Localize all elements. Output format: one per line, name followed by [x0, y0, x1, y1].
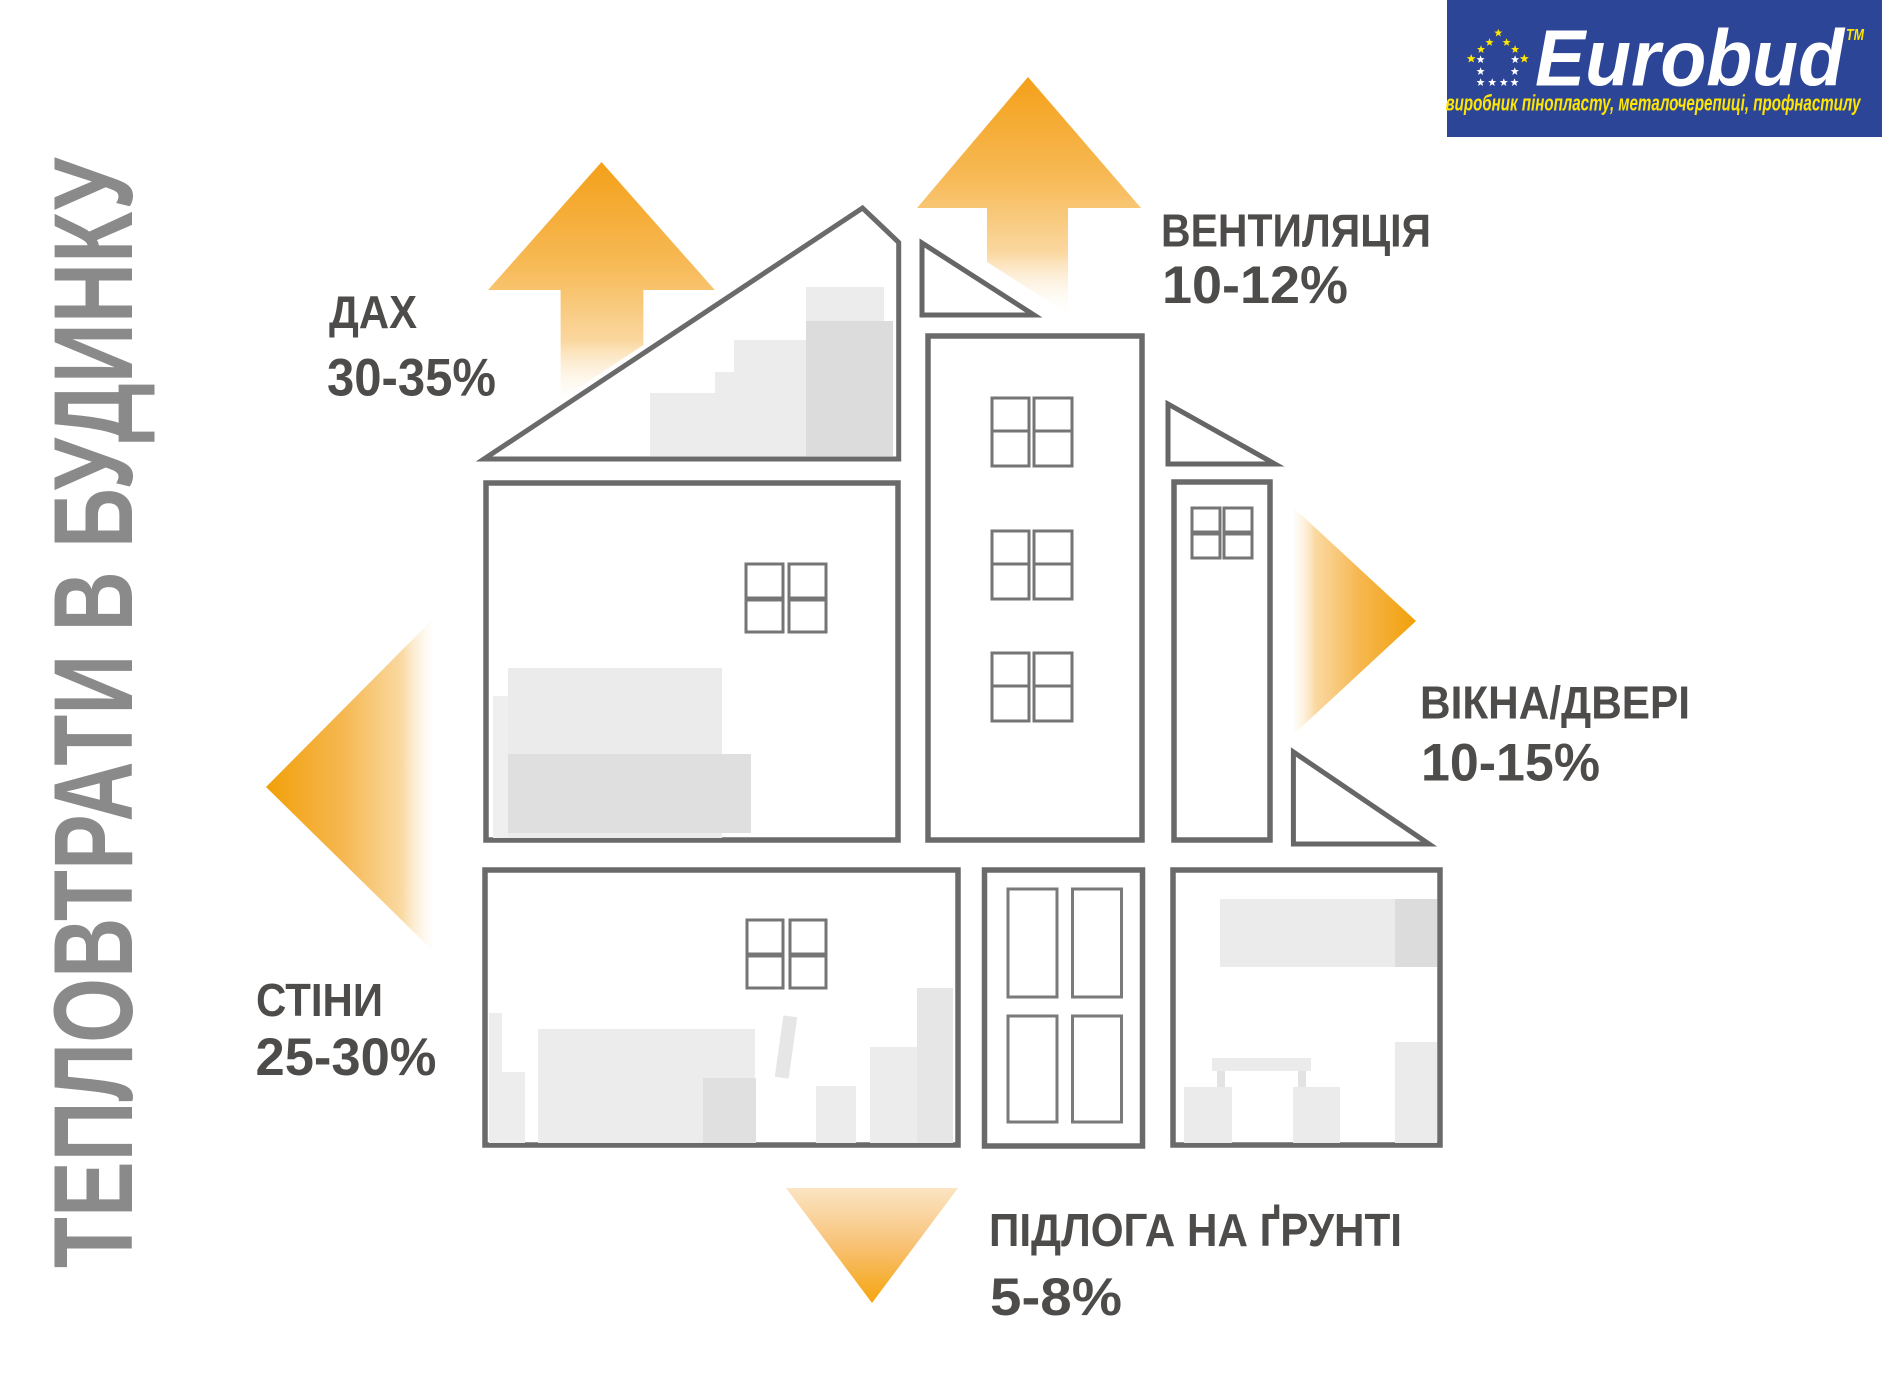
svg-text:ТЕПЛОВТРАТИ В БУДИНКУ: ТЕПЛОВТРАТИ В БУДИНКУ	[31, 157, 156, 1268]
svg-text:30-35%: 30-35%	[327, 349, 496, 408]
svg-text:25-30%: 25-30%	[256, 1028, 437, 1087]
svg-text:ВІКНА/ДВЕРІ: ВІКНА/ДВЕРІ	[1420, 677, 1690, 729]
svg-text:10-15%: 10-15%	[1421, 734, 1600, 793]
svg-text:10-12%: 10-12%	[1162, 256, 1348, 315]
svg-text:ВЕНТИЛЯЦІЯ: ВЕНТИЛЯЦІЯ	[1161, 205, 1431, 257]
svg-text:TM: TM	[1846, 27, 1865, 44]
svg-text:ДАХ: ДАХ	[329, 286, 417, 338]
svg-text:СТІНИ: СТІНИ	[256, 974, 383, 1026]
svg-text:Eurobud: Eurobud	[1535, 14, 1846, 103]
svg-text:ПІДЛОГА НА ҐРУНТІ: ПІДЛОГА НА ҐРУНТІ	[989, 1204, 1402, 1256]
svg-text:5-8%: 5-8%	[990, 1268, 1122, 1327]
svg-text:виробник пінопласту, металочер: виробник пінопласту, металочерепиці, про…	[1446, 91, 1862, 116]
